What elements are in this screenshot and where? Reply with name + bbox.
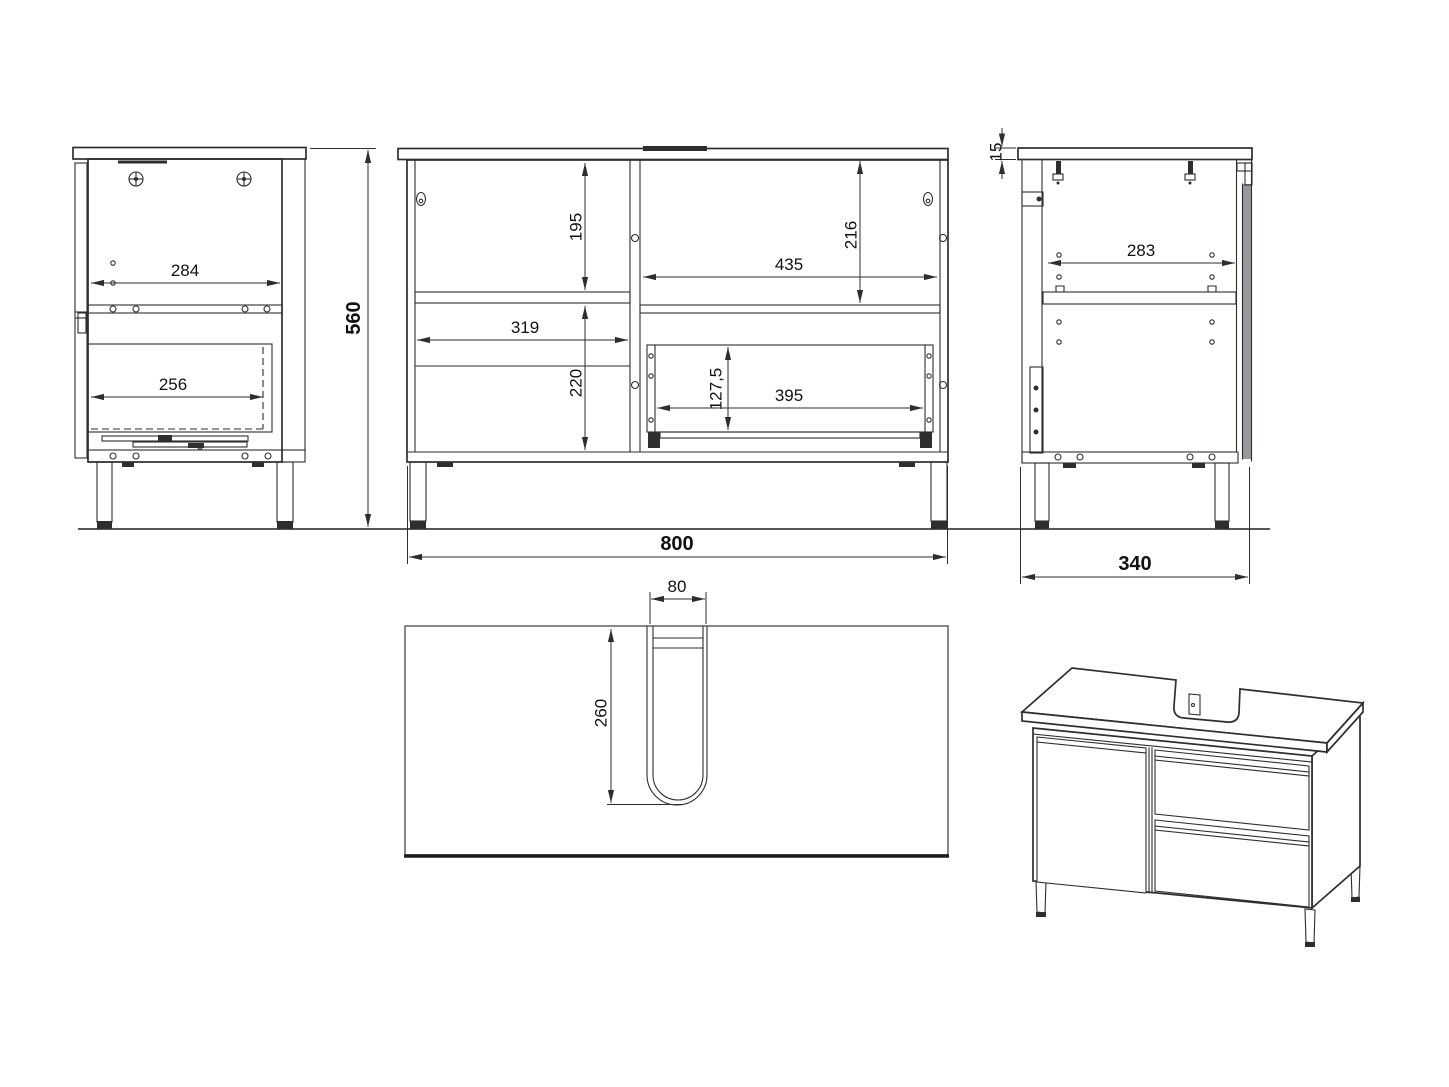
dim-label-395: 395	[775, 386, 803, 405]
dim-label-800: 800	[660, 533, 693, 555]
leg	[1036, 881, 1046, 913]
cutout-edge-mark	[118, 161, 167, 164]
screw-icon	[237, 172, 251, 186]
dim-label-340: 340	[1118, 553, 1151, 575]
dim-label-560: 560	[343, 301, 365, 334]
dim-label-216: 216	[842, 221, 861, 249]
leg-foot	[1036, 912, 1046, 917]
dim-label-80: 80	[668, 577, 687, 596]
page-background	[0, 0, 1449, 1087]
leg	[1305, 909, 1315, 943]
leg-foot	[410, 521, 426, 529]
dim-label-284: 284	[171, 261, 199, 280]
screw-icon	[129, 172, 143, 186]
sink-cutout-edge	[643, 146, 707, 151]
leg-foot	[1215, 521, 1229, 529]
dim-label-256: 256	[159, 375, 187, 394]
drawer-lower-front	[1155, 820, 1309, 907]
dim-label-127-5: 127,5	[707, 368, 726, 411]
dim-label-260: 260	[592, 699, 611, 727]
door-edge-shaded	[1243, 184, 1251, 459]
dim-label-319: 319	[511, 318, 539, 337]
leg-foot	[931, 521, 947, 529]
leg-foot	[97, 521, 112, 529]
leg-foot	[1351, 897, 1360, 902]
leg-foot	[277, 521, 293, 529]
dim-label-220: 220	[567, 369, 586, 397]
dim-label-283: 283	[1127, 241, 1155, 260]
leg-foot	[1035, 521, 1049, 529]
dim-label-435: 435	[775, 255, 803, 274]
vanity-cabinet-technical-drawing: 284 256 560	[0, 0, 1449, 1087]
dim-label-15: 15	[987, 143, 1006, 162]
door-front	[1037, 737, 1146, 893]
leg-foot	[1305, 942, 1315, 947]
technical-drawing-page: 284 256 560	[0, 0, 1449, 1087]
dim-label-195: 195	[567, 213, 586, 241]
